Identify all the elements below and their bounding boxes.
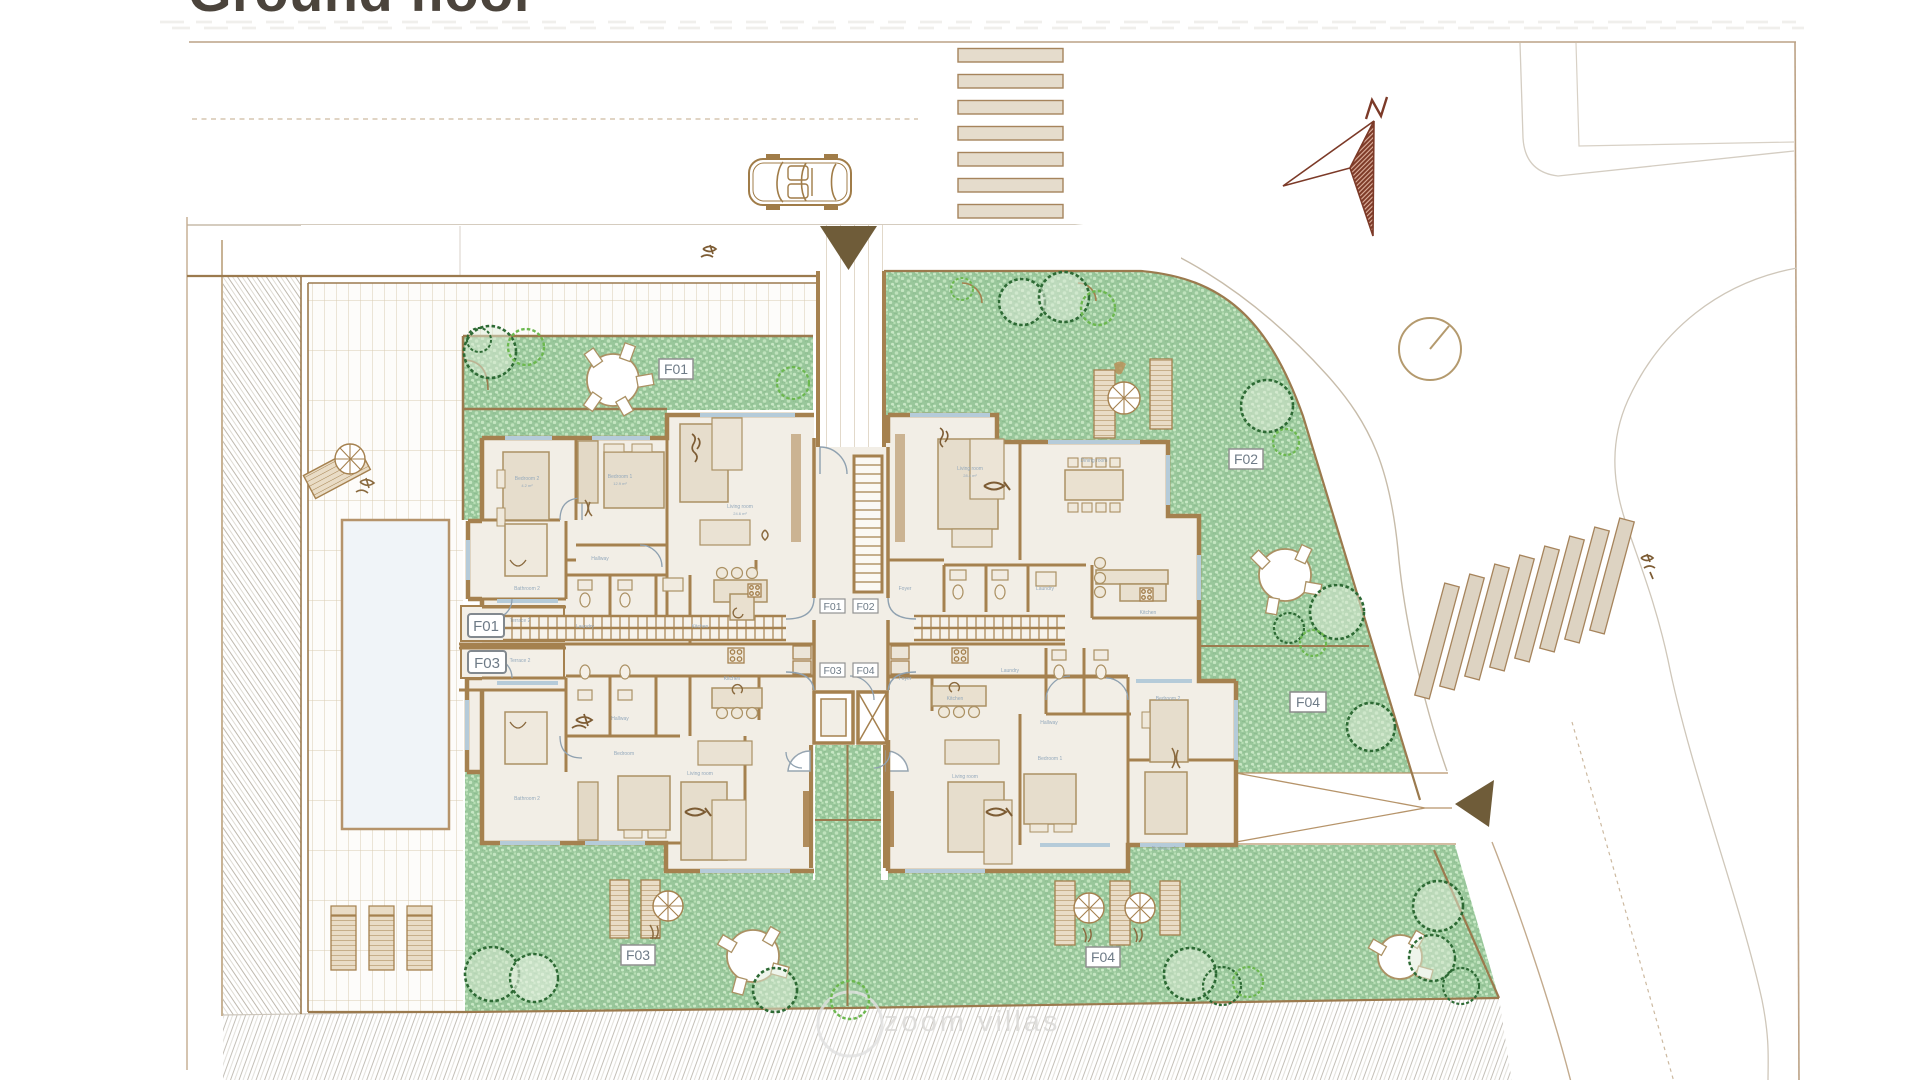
svg-text:Kitchen: Kitchen: [1140, 610, 1157, 616]
svg-text:Bedroom 2: Bedroom 2: [515, 476, 540, 482]
svg-text:4.2 m²: 4.2 m²: [521, 483, 533, 488]
svg-text:28.4 m²: 28.4 m²: [963, 473, 977, 478]
svg-text:F01: F01: [473, 618, 499, 635]
svg-text:Dining room: Dining room: [1081, 458, 1108, 464]
svg-text:Bedroom 2: Bedroom 2: [1156, 696, 1181, 702]
svg-text:Kitchen: Kitchen: [947, 696, 964, 702]
svg-text:F04: F04: [1296, 694, 1320, 710]
svg-text:Hallway: Hallway: [591, 556, 609, 562]
svg-text:Bathroom 2: Bathroom 2: [514, 586, 540, 592]
svg-text:Kitchen: Kitchen: [692, 624, 709, 630]
svg-text:F03: F03: [823, 665, 841, 677]
svg-text:F03: F03: [626, 947, 650, 963]
svg-text:Living room: Living room: [957, 466, 983, 472]
svg-text:Bathroom 2: Bathroom 2: [514, 796, 540, 802]
svg-text:Kitchen: Kitchen: [724, 676, 741, 682]
svg-text:Living room: Living room: [727, 504, 753, 510]
svg-text:Bedroom 1: Bedroom 1: [1038, 756, 1063, 762]
svg-text:F02: F02: [1234, 451, 1258, 467]
svg-text:Laundry: Laundry: [1036, 586, 1055, 592]
svg-text:zoom villas: zoom villas: [884, 1006, 1060, 1038]
svg-text:Bedroom 1: Bedroom 1: [1152, 846, 1177, 852]
svg-text:F03: F03: [474, 655, 500, 672]
svg-text:F02: F02: [856, 601, 874, 613]
svg-text:Terrace 2: Terrace 2: [510, 658, 531, 664]
svg-text:Bedroom 1: Bedroom 1: [608, 474, 633, 480]
svg-text:Hallway: Hallway: [1040, 720, 1058, 726]
svg-text:F01: F01: [664, 361, 688, 377]
svg-text:24.6 m²: 24.6 m²: [733, 511, 747, 516]
svg-text:12.9 m²: 12.9 m²: [613, 481, 627, 486]
svg-text:Terrace 2: Terrace 2: [510, 618, 531, 624]
svg-text:Living room: Living room: [687, 771, 713, 777]
svg-text:Laundry: Laundry: [1001, 668, 1020, 674]
svg-text:F04: F04: [856, 665, 874, 677]
svg-text:Ground floor: Ground floor: [188, 0, 536, 23]
svg-text:Hallway: Hallway: [611, 716, 629, 722]
svg-text:Laundry: Laundry: [576, 624, 595, 630]
svg-text:Bedroom: Bedroom: [614, 751, 634, 757]
svg-text:F01: F01: [823, 601, 841, 613]
svg-text:Foyer: Foyer: [899, 586, 912, 592]
svg-text:Living room: Living room: [952, 774, 978, 780]
svg-text:F04: F04: [1091, 949, 1115, 965]
svg-text:Foyer: Foyer: [899, 676, 912, 682]
